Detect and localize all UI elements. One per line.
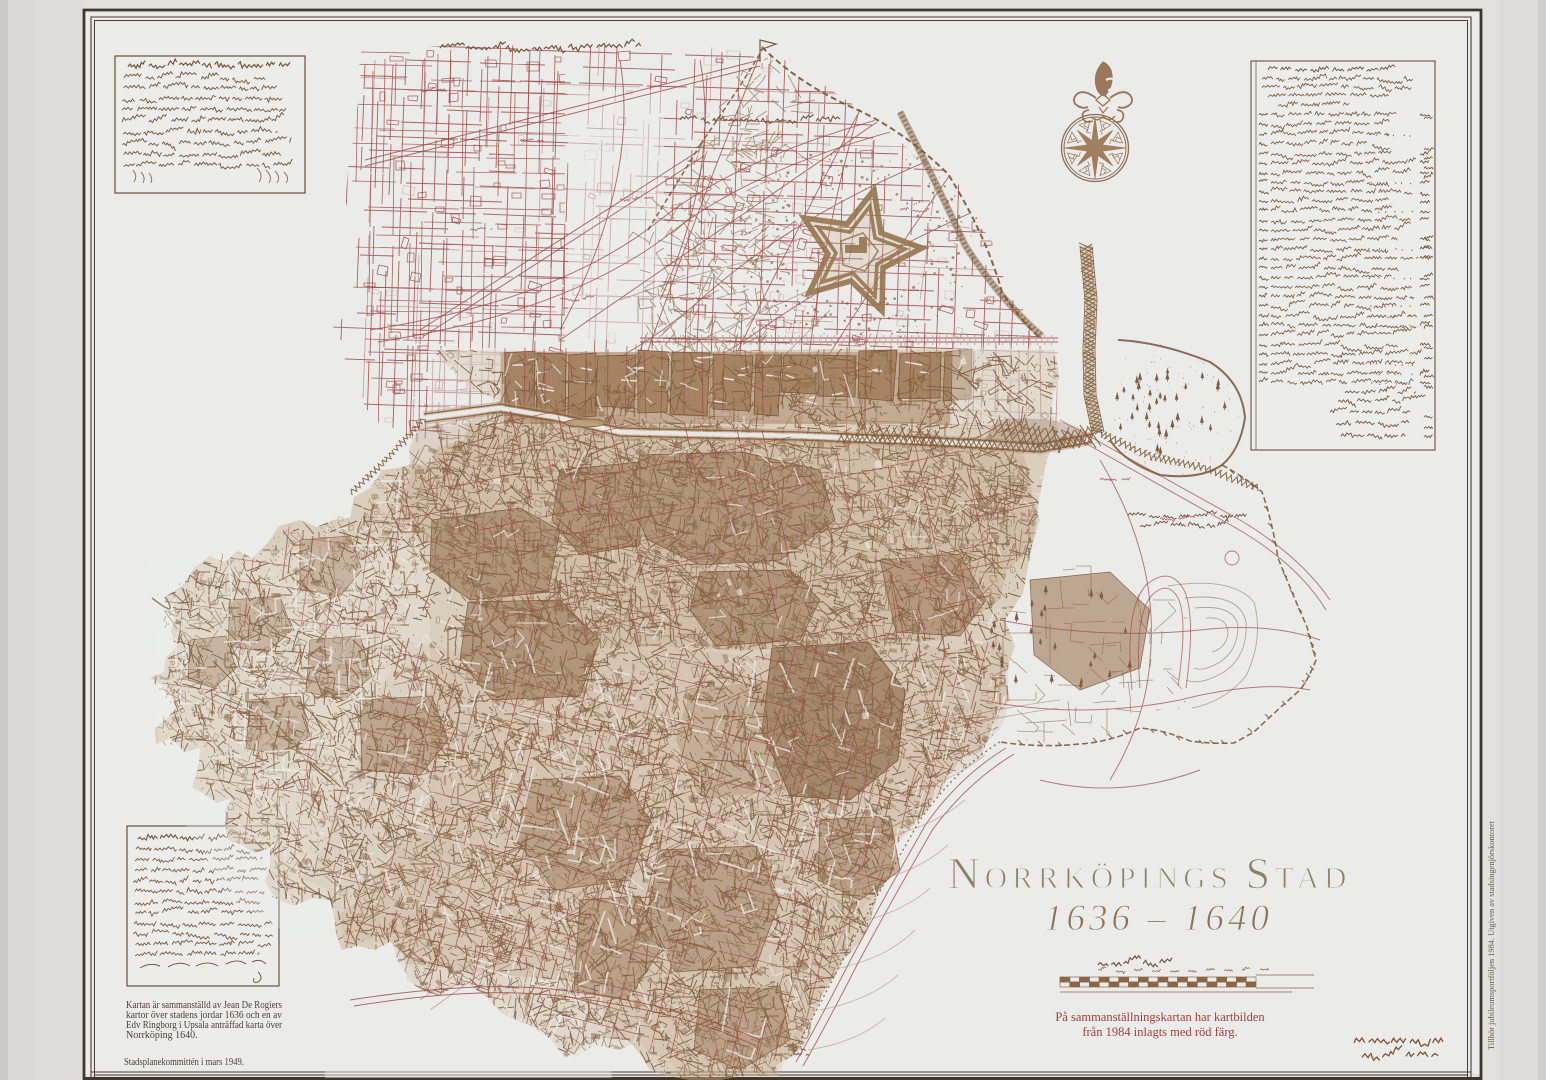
svg-text:Stadsplanekommittén i mars 194: Stadsplanekommittén i mars 1949. [124,1057,244,1068]
svg-text:från 1984 inlagts med röd färg: från 1984 inlagts med röd färg. [1082,1025,1237,1039]
svg-text:På sammanställningskartan har: På sammanställningskartan har kartbilden [1055,1010,1265,1024]
svg-text:1636 – 1640: 1636 – 1640 [1044,898,1273,939]
svg-text:Norrköping 1640.: Norrköping 1640. [126,1030,198,1041]
svg-text:Tillhör jubileumsportföljen 19: Tillhör jubileumsportföljen 1984. Utgive… [1487,820,1496,1050]
